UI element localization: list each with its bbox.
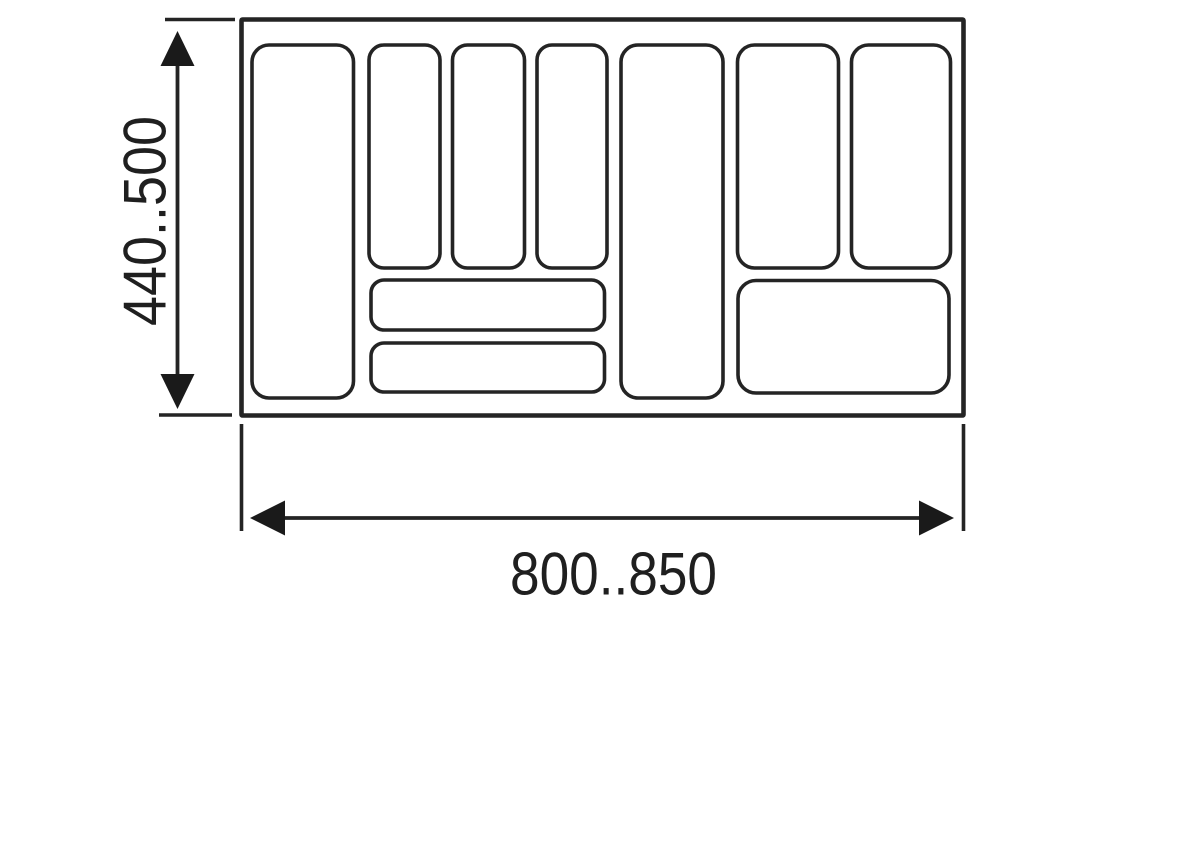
svg-text:800..850: 800..850 <box>510 540 717 608</box>
svg-text:440..500: 440..500 <box>111 116 179 326</box>
